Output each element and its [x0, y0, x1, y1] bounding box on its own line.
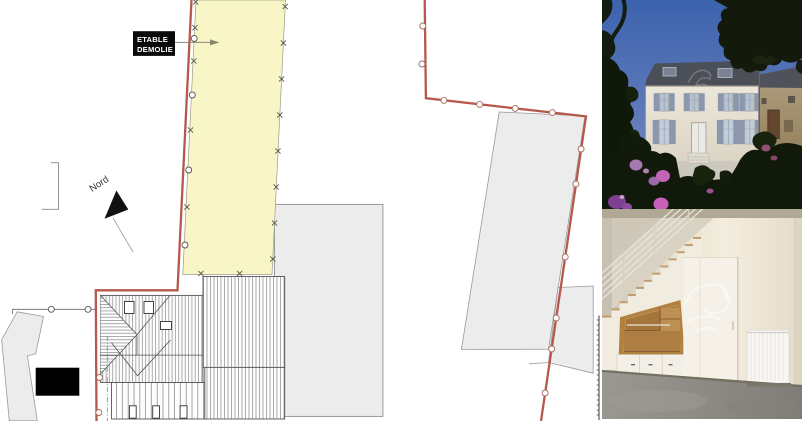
svg-text:DEMOLIE: DEMOLIE: [137, 45, 173, 54]
svg-text:Nord: Nord: [88, 174, 111, 194]
svg-text:ETABLE: ETABLE: [137, 35, 168, 44]
